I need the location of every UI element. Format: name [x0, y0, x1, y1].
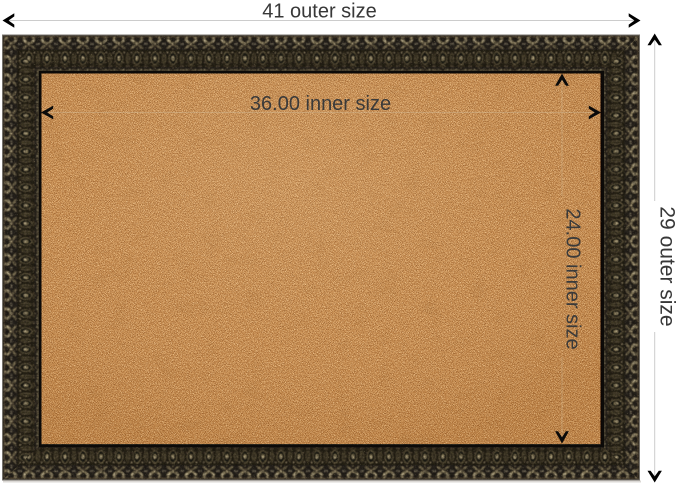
svg-text:29 outer size: 29 outer size	[656, 206, 679, 326]
svg-text:24.00 inner size: 24.00 inner size	[562, 208, 584, 349]
svg-text:36.00 inner size: 36.00 inner size	[250, 93, 391, 115]
svg-text:41 outer size: 41 outer size	[262, 1, 377, 23]
